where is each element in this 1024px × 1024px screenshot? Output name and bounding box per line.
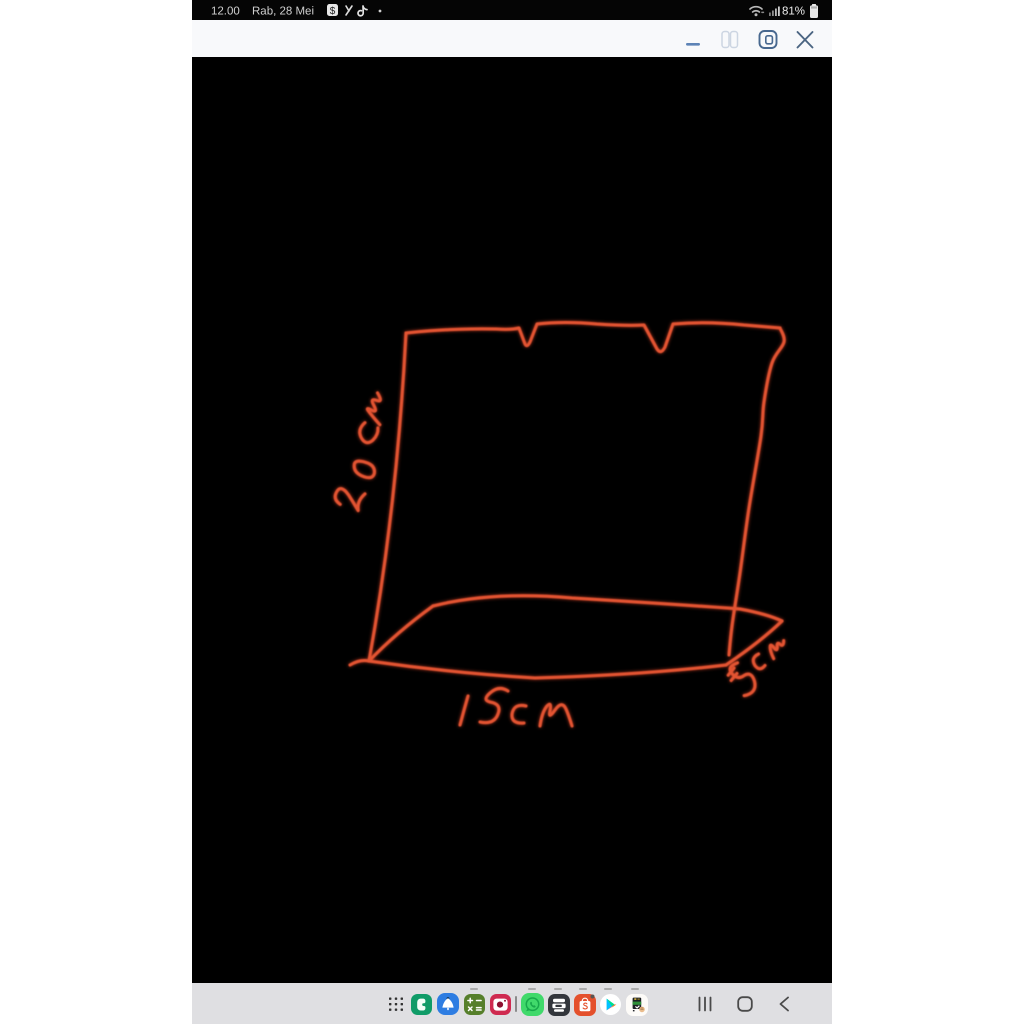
svg-text:81%: 81% [782,5,805,17]
svg-text:12.00: 12.00 [211,5,240,17]
svg-text:Rab, 28 Mei: Rab, 28 Mei [252,5,314,17]
svg-text:$: $ [330,6,336,17]
